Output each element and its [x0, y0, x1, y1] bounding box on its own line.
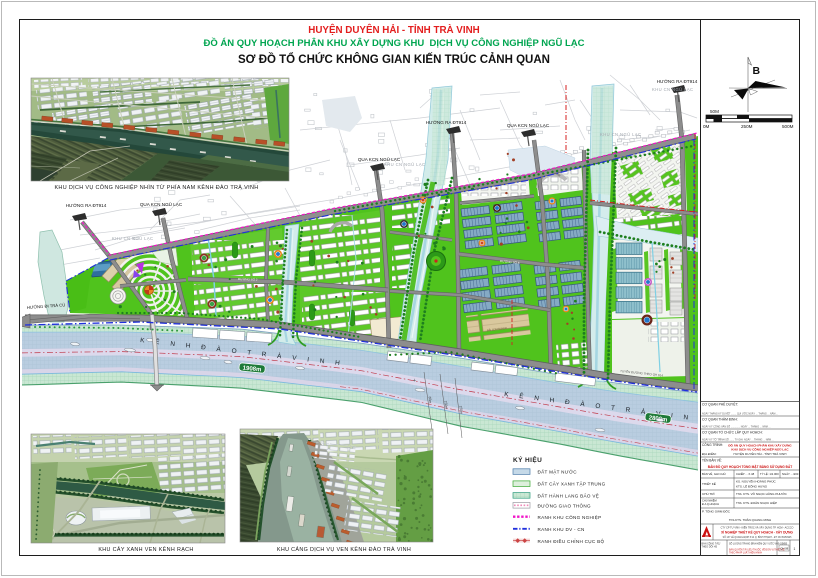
svg-text:ĐƯỜNG SỐ 2: ĐƯỜNG SỐ 2: [238, 276, 258, 282]
svg-text:HƯỚNG RA ĐT914: HƯỚNG RA ĐT914: [426, 119, 467, 125]
svg-text:KHU CN NGŨ LẠC: KHU CN NGŨ LẠC: [600, 132, 641, 137]
svg-text:QUA KCN NGŨ LẠC: QUA KCN NGŨ LẠC: [140, 201, 183, 207]
svg-text:KHU CN NGŨ LẠC: KHU CN NGŨ LẠC: [384, 162, 425, 167]
svg-text:RANH KHU CÔNG NGHIỆP: RANH KHU CÔNG NGHIỆP: [538, 513, 602, 520]
svg-text:KHU CN NGŨ LẠC: KHU CN NGŨ LẠC: [112, 236, 153, 241]
svg-text:KHU CÂY XANH VEN KÊNH RẠCH: KHU CÂY XANH VEN KÊNH RẠCH: [98, 545, 193, 553]
svg-text:HƯỚNG RA ĐT914: HƯỚNG RA ĐT914: [657, 78, 698, 84]
svg-text:65m: 65m: [428, 396, 433, 403]
svg-text:RANH KHU DV - CN: RANH KHU DV - CN: [538, 527, 585, 532]
svg-text:KHU DỊCH VỤ CÔNG NGHIỆP NHÌN T: KHU DỊCH VỤ CÔNG NGHIỆP NHÌN TỪ PHÍA NAM…: [54, 183, 258, 191]
svg-text:+: +: [413, 378, 416, 384]
svg-text:ĐẤT MẶT NƯỚC: ĐẤT MẶT NƯỚC: [538, 469, 578, 475]
svg-text:KHU CẢNG DỊCH VỤ VEN KÊNH ĐÀO: KHU CẢNG DỊCH VỤ VEN KÊNH ĐÀO TRÀ VINH: [277, 545, 411, 553]
svg-text:ĐƯỜNG GIAO THÔNG: ĐƯỜNG GIAO THÔNG: [538, 502, 592, 508]
svg-text:HƯỚNG RA ĐT914: HƯỚNG RA ĐT914: [66, 202, 107, 208]
svg-text:ĐẤT HÀNH LANG BẢO VỆ: ĐẤT HÀNH LANG BẢO VỆ: [538, 491, 600, 498]
svg-text:QUA KCN NGŨ LẠC: QUA KCN NGŨ LẠC: [507, 122, 550, 128]
svg-text:KHU CN NGŨ LẠC: KHU CN NGŨ LẠC: [652, 87, 693, 92]
svg-text:KÝ HIỆU: KÝ HIỆU: [513, 455, 542, 464]
svg-text:ĐẤT CÂY XANH TẬP TRUNG: ĐẤT CÂY XANH TẬP TRUNG: [538, 481, 606, 487]
svg-text:RANH ĐIỀU CHỈNH CỤC BỘ: RANH ĐIỀU CHỈNH CỤC BỘ: [538, 538, 605, 544]
